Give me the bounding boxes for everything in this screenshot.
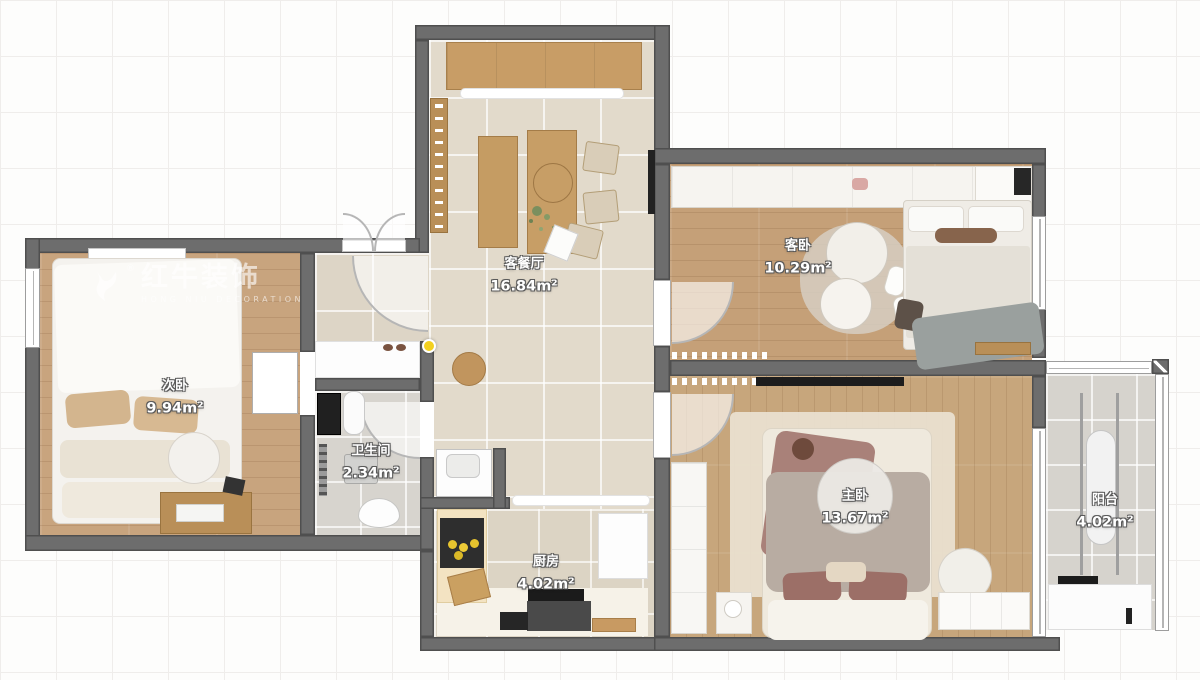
second-area: 9.94m² — [146, 401, 203, 416]
guest-bed-brown-pillow — [935, 228, 997, 243]
plant — [532, 206, 542, 216]
master-pouf — [792, 438, 814, 460]
towel-radiator — [319, 444, 327, 496]
entrance-door-leaf-right — [374, 213, 405, 251]
living-side-shelf — [430, 98, 448, 233]
wall-guest-top — [654, 148, 1046, 164]
balcony-top-window — [1046, 361, 1152, 374]
wall-kitchen-left — [420, 551, 434, 637]
dining-table-left — [478, 136, 518, 248]
light-marker — [422, 339, 436, 353]
wall-guest-bottom — [670, 360, 1046, 376]
master-pillow-small — [826, 562, 866, 582]
floor-plan: 客餐厅 16.84m² 客卧 10.29m² 次卧 9.94m² 卫生间 2.3… — [0, 0, 1200, 680]
guest-pink-item — [852, 178, 868, 190]
balcony-right-window — [1155, 374, 1169, 631]
wood-stool — [452, 352, 486, 386]
kitchen-area: 4.02m² — [517, 577, 574, 592]
wall-basin-niche-right — [493, 448, 506, 509]
guest-door-leaf — [653, 280, 671, 346]
entry-shoe-left — [383, 344, 393, 351]
master-door-leaf — [653, 392, 671, 458]
label-master: 主卧 13.67m² — [821, 490, 888, 527]
kitchen-bench — [592, 618, 636, 632]
wall-master-right-upper — [1032, 376, 1046, 428]
balcony-slider-door — [1032, 428, 1046, 637]
wall-kitchen-bottom — [420, 637, 672, 651]
second-bedroom-door-opening — [300, 352, 315, 415]
label-guest: 客卧 10.29m² — [764, 240, 831, 277]
guest-bench — [975, 342, 1031, 355]
master-dresser — [938, 592, 1030, 630]
wall-second-bottom — [25, 535, 434, 551]
second-bedroom-door-leaf — [252, 352, 298, 414]
wall-living-top — [415, 25, 669, 40]
living-area: 16.84m² — [490, 279, 557, 294]
guest-wall-tv — [1014, 168, 1031, 195]
corridor-washbasin-bowl — [446, 454, 480, 478]
living-name: 客餐厅 — [490, 258, 557, 272]
kitchen-stove — [440, 518, 484, 568]
living-light-bar — [460, 88, 624, 99]
second-bedroom-window — [25, 268, 40, 348]
label-second: 次卧 9.94m² — [146, 380, 203, 417]
master-lamp — [724, 600, 742, 618]
wall-living-left — [415, 40, 429, 253]
master-area: 13.67m² — [821, 511, 888, 526]
balcony-bottle — [1126, 608, 1132, 624]
wall-alcove-bottom — [315, 378, 420, 391]
balcony-cabinet — [1048, 584, 1152, 630]
dining-table-tray — [533, 163, 573, 203]
wall-center-vertical-b — [654, 164, 670, 280]
balcony-corner-block — [1152, 359, 1169, 374]
dining-chair-1 — [582, 141, 620, 175]
living-tv — [648, 150, 655, 214]
second-desk-keyboard — [176, 504, 224, 522]
kitchen-light-bar — [512, 495, 650, 506]
second-bed-pillow-1 — [65, 389, 132, 428]
balcony-name: 阳台 — [1076, 494, 1133, 508]
label-living: 客餐厅 16.84m² — [490, 258, 557, 295]
guest-wall-ticks-top — [672, 352, 772, 359]
balcony-area: 4.02m² — [1076, 515, 1133, 530]
kitchen-lemons — [448, 540, 457, 549]
range-hood-body — [527, 601, 591, 631]
guest-round-table-small — [820, 278, 872, 330]
kitchen-dark-box — [500, 612, 528, 630]
master-tv — [756, 377, 904, 386]
wall-center-vertical-a — [654, 25, 670, 164]
guest-area: 10.29m² — [764, 261, 831, 276]
entrance-door-leaf-left — [343, 213, 374, 251]
dining-chair-2 — [582, 189, 619, 224]
toilet — [358, 498, 400, 528]
wall-center-vertical-c — [654, 346, 670, 392]
label-kitchen: 厨房 4.02m² — [517, 556, 574, 593]
master-wardrobe — [671, 462, 707, 634]
living-top-cabinet — [446, 42, 642, 90]
wall-center-vertical-d — [654, 458, 670, 637]
balcony-black-bar — [1058, 576, 1098, 584]
second-name: 次卧 — [146, 380, 203, 394]
master-sheet — [768, 600, 928, 640]
label-bath: 卫生间 2.34m² — [342, 445, 399, 482]
kitchen-name: 厨房 — [517, 556, 574, 570]
bath-name: 卫生间 — [342, 445, 399, 459]
wall-second-right-lower — [300, 415, 315, 535]
master-name: 主卧 — [821, 490, 888, 504]
label-balcony: 阳台 4.02m² — [1076, 494, 1133, 531]
guest-round-table-large — [826, 222, 888, 284]
guest-name: 客卧 — [764, 240, 831, 254]
balcony-rail-left — [1080, 393, 1083, 575]
balcony-rail-right — [1116, 393, 1119, 575]
bath-area: 2.34m² — [342, 466, 399, 481]
bath-door-opening — [420, 402, 434, 457]
second-chair — [168, 432, 220, 484]
second-bed-duvet — [54, 259, 240, 393]
guest-bedroom-window — [1032, 216, 1046, 310]
wall-second-right-upper — [300, 253, 315, 352]
bath-water-heater — [343, 391, 365, 435]
washing-machine — [317, 393, 341, 435]
kitchen-white-panel — [598, 513, 648, 579]
entry-shoe-right — [396, 344, 406, 351]
